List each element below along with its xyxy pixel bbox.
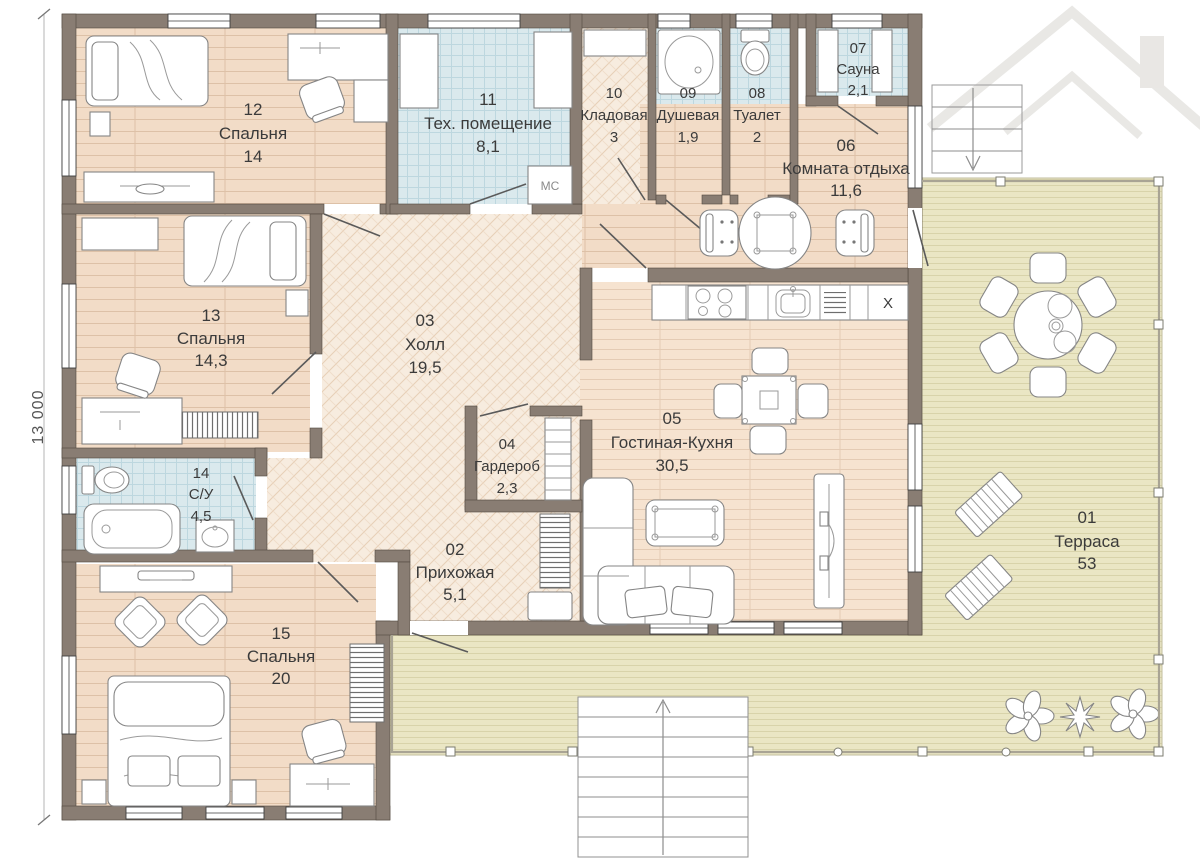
svg-text:20: 20: [272, 669, 291, 688]
window: [62, 100, 76, 176]
svg-text:04: 04: [499, 436, 516, 453]
washing-machine: МС: [528, 166, 572, 204]
double-bed: [108, 676, 230, 806]
svg-text:15: 15: [272, 624, 291, 643]
wardrobe-closet: [545, 418, 571, 500]
window: [784, 622, 842, 634]
svg-text:2,3: 2,3: [497, 480, 518, 497]
svg-text:Терраса: Терраса: [1054, 532, 1120, 551]
bed: [86, 36, 208, 106]
svg-text:14: 14: [193, 465, 210, 482]
svg-text:Душевая: Душевая: [657, 107, 720, 124]
window: [206, 807, 264, 819]
svg-text:30,5: 30,5: [655, 456, 688, 475]
svg-text:19,5: 19,5: [408, 358, 441, 377]
window: [168, 14, 230, 28]
dining-chair: [714, 384, 742, 418]
svg-text:5,1: 5,1: [443, 585, 467, 604]
stairs-main-entrance: [578, 697, 748, 857]
dining-chair: [752, 348, 788, 374]
nightstand: [286, 290, 308, 316]
svg-text:С/У: С/У: [189, 486, 214, 503]
toilet: [741, 30, 769, 75]
svg-text:14,3: 14,3: [194, 351, 227, 370]
svg-text:4,5: 4,5: [191, 508, 212, 525]
svg-text:Гостиная-Кухня: Гостиная-Кухня: [611, 433, 734, 452]
cabinet: [400, 34, 438, 108]
svg-text:Холл: Холл: [405, 335, 445, 354]
shelf-radiator: [350, 644, 384, 722]
window: [62, 656, 76, 734]
svg-text:09: 09: [680, 85, 697, 102]
stairs-terrace-side: [932, 85, 1022, 173]
window: [428, 14, 520, 28]
dining-chair: [750, 426, 786, 454]
toilet: [82, 466, 129, 494]
floor-corridor: [582, 204, 640, 268]
chair: [836, 210, 874, 256]
svg-text:Туалет: Туалет: [733, 107, 781, 124]
coffee-table: [646, 500, 724, 546]
terrace-chair: [1030, 367, 1066, 397]
svg-text:14: 14: [244, 147, 263, 166]
shoe-rack: [540, 514, 570, 588]
radiator: [182, 412, 258, 438]
svg-text:3: 3: [610, 129, 618, 146]
floor-plan-svg: KvartWell.kz: [0, 0, 1200, 864]
svg-text:11,6: 11,6: [830, 181, 862, 200]
window: [62, 466, 76, 514]
chair: [700, 210, 738, 256]
terrace-round-table: [1014, 291, 1082, 359]
svg-text:02: 02: [446, 540, 465, 559]
desk: [288, 34, 388, 80]
door-mat: [528, 592, 572, 620]
svg-text:2,1: 2,1: [848, 82, 869, 99]
svg-text:10: 10: [606, 85, 623, 102]
window: [736, 14, 772, 28]
plant: [1060, 697, 1100, 737]
svg-text:Гардероб: Гардероб: [474, 458, 540, 475]
window: [908, 106, 922, 188]
svg-text:Кладовая: Кладовая: [580, 107, 647, 124]
stove: [688, 286, 746, 319]
dresser: [82, 218, 158, 250]
nightstand: [90, 112, 110, 136]
svg-text:Прихожая: Прихожая: [416, 563, 495, 582]
svg-text:Спальня: Спальня: [219, 124, 287, 143]
svg-text:07: 07: [850, 40, 867, 57]
dimension-total-height: 13 000: [30, 390, 47, 445]
storage-shelf: [584, 30, 646, 56]
svg-text:8,1: 8,1: [476, 137, 500, 156]
window: [832, 14, 882, 28]
window: [908, 424, 922, 490]
svg-text:Комната отдыха: Комната отдыха: [782, 159, 910, 178]
window: [316, 14, 380, 28]
dresser: [84, 172, 214, 202]
desk: [290, 764, 374, 806]
svg-text:03: 03: [416, 311, 435, 330]
bed: [184, 216, 306, 286]
svg-text:Спальня: Спальня: [177, 329, 245, 348]
svg-text:2: 2: [753, 129, 761, 146]
bathtub: [84, 504, 180, 554]
nightstand: [232, 780, 256, 804]
svg-text:11: 11: [479, 90, 497, 109]
washing-machine-label: МС: [541, 179, 560, 193]
svg-text:06: 06: [837, 136, 856, 155]
svg-text:53: 53: [1078, 554, 1097, 573]
svg-text:13: 13: [202, 306, 221, 325]
svg-text:Спальня: Спальня: [247, 647, 315, 666]
dining-chair: [798, 384, 828, 418]
round-table: [739, 197, 811, 269]
dimension-line-left: 13 000: [30, 9, 50, 825]
svg-text:Сауна: Сауна: [836, 61, 880, 78]
nightstand: [82, 780, 106, 804]
tv-stand: [100, 566, 232, 592]
window: [908, 506, 922, 572]
terrace-chair: [1030, 253, 1066, 283]
window: [62, 284, 76, 368]
svg-text:05: 05: [663, 409, 682, 428]
cabinet: [534, 32, 572, 108]
window: [658, 14, 690, 28]
kitchen-unit-label: X: [883, 295, 893, 312]
desk-return: [354, 80, 388, 122]
floor-plan: KvartWell.kz: [0, 0, 1200, 864]
dish-rack: [824, 292, 846, 314]
window: [286, 807, 342, 819]
tv-cabinet: [814, 474, 844, 608]
svg-text:Тех. помещение: Тех. помещение: [424, 114, 552, 133]
window: [126, 807, 182, 819]
logo-chimney: [1140, 36, 1164, 88]
svg-text:08: 08: [749, 85, 766, 102]
svg-text:12: 12: [244, 100, 263, 119]
desk: [82, 398, 182, 444]
svg-text:1,9: 1,9: [678, 129, 699, 146]
svg-text:01: 01: [1078, 508, 1097, 527]
dining-table: [742, 376, 796, 424]
